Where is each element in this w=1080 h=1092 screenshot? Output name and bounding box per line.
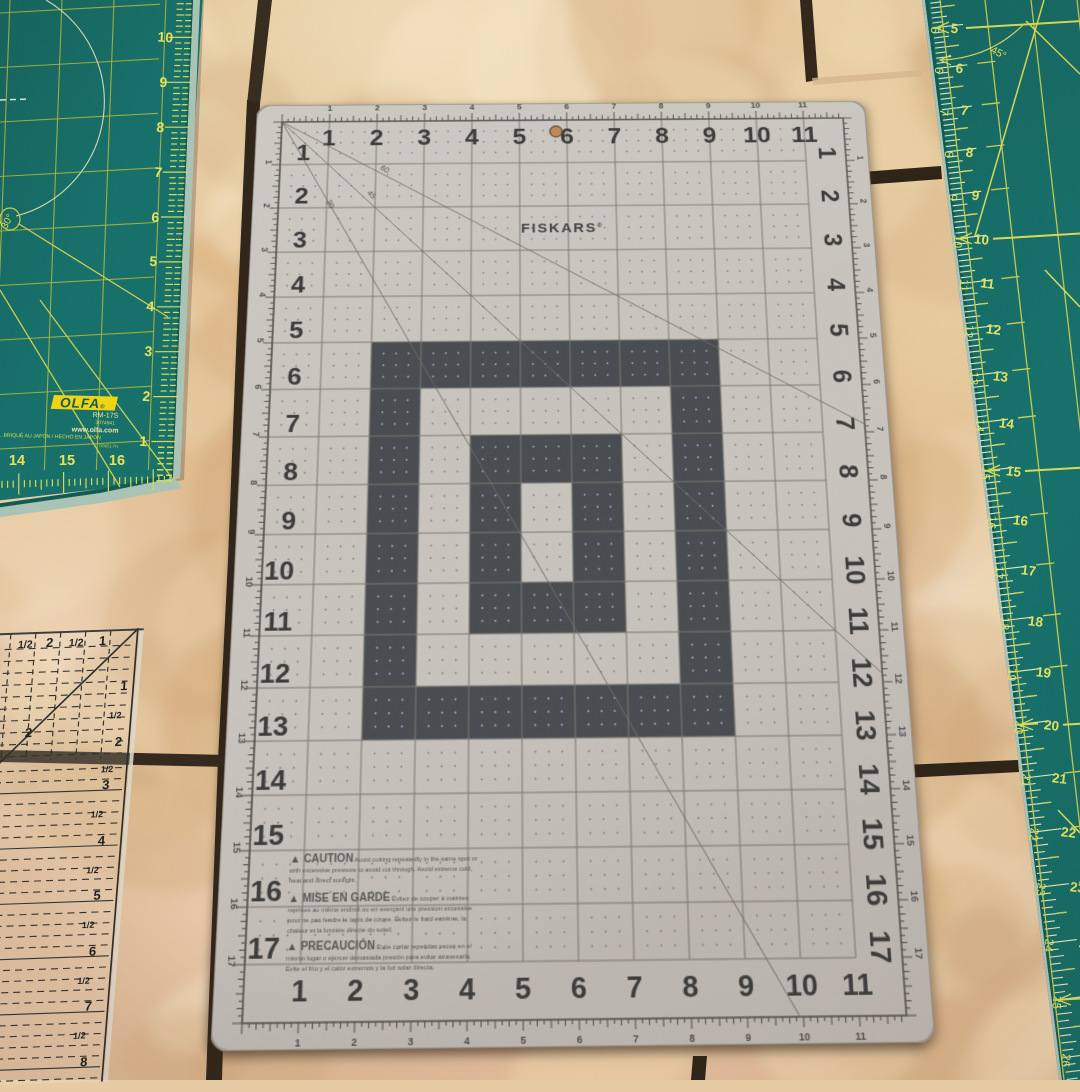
svg-text:2: 2 bbox=[262, 203, 272, 208]
svg-text:14: 14 bbox=[233, 787, 244, 799]
svg-text:13: 13 bbox=[849, 710, 882, 741]
svg-text:4: 4 bbox=[464, 1035, 470, 1047]
svg-text:9: 9 bbox=[246, 529, 257, 535]
svg-text:9: 9 bbox=[882, 523, 893, 529]
svg-text:6: 6 bbox=[577, 1034, 583, 1046]
svg-text:1: 1 bbox=[295, 1037, 302, 1049]
svg-text:16: 16 bbox=[228, 898, 240, 910]
svg-text:6: 6 bbox=[827, 369, 857, 383]
svg-text:12: 12 bbox=[893, 673, 904, 684]
svg-text:4: 4 bbox=[865, 287, 875, 292]
svg-text:7: 7 bbox=[154, 164, 163, 181]
svg-text:5: 5 bbox=[289, 316, 304, 343]
svg-text:1/2: 1/2 bbox=[100, 764, 113, 774]
svg-text:5: 5 bbox=[255, 338, 265, 343]
svg-text:7: 7 bbox=[626, 970, 643, 1004]
svg-text:13: 13 bbox=[896, 726, 908, 737]
svg-text:4: 4 bbox=[822, 278, 851, 291]
svg-text:2: 2 bbox=[142, 388, 151, 405]
svg-text:4: 4 bbox=[291, 271, 306, 297]
svg-text:11: 11 bbox=[956, 278, 971, 292]
svg-text:5: 5 bbox=[93, 888, 101, 903]
svg-text:14: 14 bbox=[998, 415, 1015, 432]
svg-text:14: 14 bbox=[853, 763, 886, 795]
svg-text:RM-17S: RM-17S bbox=[93, 412, 119, 420]
svg-text:8: 8 bbox=[248, 480, 259, 486]
svg-text:2: 2 bbox=[351, 1036, 358, 1048]
svg-text:10: 10 bbox=[750, 101, 760, 110]
svg-text:15: 15 bbox=[1005, 463, 1022, 480]
svg-text:14: 14 bbox=[900, 780, 912, 792]
svg-text:16: 16 bbox=[908, 891, 920, 903]
svg-text:6: 6 bbox=[151, 209, 160, 226]
svg-text:2: 2 bbox=[294, 183, 309, 208]
svg-text:4: 4 bbox=[146, 298, 155, 315]
svg-text:2: 2 bbox=[816, 190, 845, 203]
svg-text:4: 4 bbox=[470, 103, 475, 112]
svg-text:1/2: 1/2 bbox=[18, 639, 34, 651]
svg-text:7: 7 bbox=[285, 410, 301, 438]
svg-text:13: 13 bbox=[992, 368, 1009, 385]
svg-text:1: 1 bbox=[855, 156, 865, 161]
svg-text:17: 17 bbox=[863, 930, 897, 964]
svg-text:11: 11 bbox=[980, 275, 996, 292]
svg-text:2: 2 bbox=[114, 734, 122, 749]
svg-text:3: 3 bbox=[422, 103, 427, 112]
svg-text:8: 8 bbox=[878, 474, 889, 480]
svg-text:6: 6 bbox=[253, 384, 263, 389]
svg-text:3: 3 bbox=[861, 243, 871, 248]
svg-text:2: 2 bbox=[858, 199, 868, 204]
svg-text:7: 7 bbox=[84, 999, 92, 1014]
svg-text:7: 7 bbox=[633, 1033, 640, 1045]
svg-text:3074941: 3074941 bbox=[95, 420, 115, 427]
svg-text:11: 11 bbox=[263, 606, 293, 636]
svg-text:1/2: 1/2 bbox=[82, 920, 95, 930]
svg-text:13: 13 bbox=[257, 710, 289, 741]
svg-text:17: 17 bbox=[225, 955, 237, 967]
svg-text:6: 6 bbox=[871, 379, 881, 384]
svg-text:6: 6 bbox=[287, 363, 303, 390]
svg-text:17: 17 bbox=[247, 931, 281, 965]
svg-text:9: 9 bbox=[281, 506, 297, 535]
svg-text:13: 13 bbox=[966, 371, 981, 386]
svg-text:20: 20 bbox=[1043, 717, 1060, 734]
svg-text:8: 8 bbox=[689, 1032, 696, 1044]
svg-text:8: 8 bbox=[655, 123, 670, 148]
svg-text:1/2: 1/2 bbox=[73, 1031, 86, 1041]
svg-text:8: 8 bbox=[659, 102, 665, 110]
svg-text:7: 7 bbox=[251, 432, 261, 437]
svg-text:12: 12 bbox=[239, 680, 250, 691]
svg-text:5: 5 bbox=[149, 253, 158, 270]
svg-text:15: 15 bbox=[252, 819, 285, 852]
svg-text:2: 2 bbox=[375, 104, 381, 113]
svg-text:1: 1 bbox=[813, 147, 842, 160]
svg-text:6: 6 bbox=[571, 971, 588, 1005]
svg-text:8: 8 bbox=[156, 119, 165, 136]
svg-text:6: 6 bbox=[89, 944, 97, 959]
svg-text:4: 4 bbox=[257, 292, 267, 297]
svg-text:9: 9 bbox=[159, 74, 168, 91]
svg-text:14: 14 bbox=[9, 453, 25, 469]
svg-text:17: 17 bbox=[991, 565, 1006, 580]
svg-text:chaleur et la lumière directe: chaleur et la lumière directe du soleil. bbox=[287, 927, 393, 936]
svg-text:12: 12 bbox=[846, 657, 879, 687]
svg-text:3: 3 bbox=[408, 1036, 415, 1048]
svg-text:RB651-7N: RB651-7N bbox=[99, 443, 118, 448]
svg-text:9: 9 bbox=[702, 123, 717, 148]
svg-text:6: 6 bbox=[564, 102, 569, 111]
svg-text:10: 10 bbox=[157, 28, 174, 45]
svg-text:11: 11 bbox=[241, 628, 252, 639]
svg-text:1: 1 bbox=[327, 104, 333, 113]
svg-text:10: 10 bbox=[243, 577, 254, 588]
svg-text:12: 12 bbox=[985, 321, 1002, 338]
svg-text:5: 5 bbox=[520, 1034, 526, 1046]
svg-text:10: 10 bbox=[743, 122, 772, 147]
svg-text:17: 17 bbox=[912, 948, 924, 960]
svg-text:5: 5 bbox=[517, 103, 522, 112]
svg-text:8: 8 bbox=[682, 969, 699, 1003]
svg-text:heat and direct sunlight.: heat and direct sunlight. bbox=[289, 877, 357, 885]
svg-text:22: 22 bbox=[1026, 827, 1041, 842]
svg-text:1/2: 1/2 bbox=[109, 710, 122, 720]
svg-text:12: 12 bbox=[259, 658, 291, 689]
svg-text:5: 5 bbox=[868, 333, 878, 338]
svg-text:2: 2 bbox=[369, 125, 383, 150]
svg-text:3: 3 bbox=[259, 247, 269, 252]
svg-text:6: 6 bbox=[560, 124, 574, 149]
svg-text:15: 15 bbox=[856, 818, 890, 850]
svg-text:19: 19 bbox=[1035, 664, 1052, 681]
svg-text:12: 12 bbox=[961, 324, 976, 339]
svg-text:16: 16 bbox=[1012, 512, 1029, 529]
svg-text:16: 16 bbox=[250, 874, 283, 907]
svg-text:1: 1 bbox=[139, 433, 148, 450]
svg-text:15: 15 bbox=[231, 842, 243, 854]
svg-text:16: 16 bbox=[860, 873, 894, 906]
svg-text:3: 3 bbox=[403, 972, 420, 1006]
svg-text:4: 4 bbox=[465, 124, 479, 149]
svg-text:11: 11 bbox=[855, 1030, 867, 1042]
svg-text:18: 18 bbox=[997, 616, 1012, 631]
svg-text:16: 16 bbox=[984, 515, 999, 530]
svg-text:OLFA®: OLFA® bbox=[60, 395, 106, 411]
svg-text:15: 15 bbox=[904, 835, 916, 847]
svg-text:5: 5 bbox=[515, 971, 531, 1005]
svg-text:5: 5 bbox=[824, 323, 854, 337]
svg-text:1/2: 1/2 bbox=[77, 976, 90, 986]
svg-text:21: 21 bbox=[1018, 773, 1033, 788]
svg-text:11: 11 bbox=[791, 122, 819, 147]
svg-text:3: 3 bbox=[102, 777, 110, 792]
svg-text:23: 23 bbox=[1069, 879, 1080, 896]
svg-text:15: 15 bbox=[59, 453, 75, 469]
svg-text:1: 1 bbox=[291, 974, 308, 1008]
svg-text:1/2: 1/2 bbox=[90, 809, 103, 819]
svg-text:10: 10 bbox=[264, 556, 295, 586]
svg-text:10: 10 bbox=[799, 1031, 812, 1043]
svg-text:3: 3 bbox=[417, 125, 431, 150]
svg-text:10: 10 bbox=[839, 555, 871, 584]
svg-text:2: 2 bbox=[24, 725, 32, 740]
svg-text:5: 5 bbox=[513, 124, 527, 149]
svg-text:11: 11 bbox=[841, 967, 874, 1001]
svg-text:1: 1 bbox=[296, 140, 311, 165]
svg-text:9: 9 bbox=[837, 513, 868, 528]
svg-text:7: 7 bbox=[607, 123, 621, 148]
svg-text:18: 18 bbox=[1027, 613, 1044, 630]
svg-text:8: 8 bbox=[80, 1054, 88, 1069]
svg-text:1: 1 bbox=[264, 160, 274, 165]
svg-text:3: 3 bbox=[292, 227, 307, 253]
svg-text:3: 3 bbox=[144, 343, 153, 360]
svg-text:7: 7 bbox=[830, 416, 860, 430]
svg-text:14: 14 bbox=[972, 418, 987, 433]
svg-text:1: 1 bbox=[99, 633, 107, 648]
svg-text:8: 8 bbox=[834, 464, 864, 478]
svg-text:FISKARS®: FISKARS® bbox=[521, 220, 604, 235]
svg-text:8: 8 bbox=[283, 457, 299, 485]
svg-text:13: 13 bbox=[236, 733, 247, 744]
svg-text:2: 2 bbox=[46, 635, 54, 650]
svg-text:11: 11 bbox=[843, 607, 875, 636]
svg-text:www.olfa.com: www.olfa.com bbox=[71, 426, 119, 434]
svg-text:17: 17 bbox=[1020, 562, 1037, 579]
svg-text:1/2: 1/2 bbox=[86, 865, 99, 875]
svg-text:7: 7 bbox=[611, 102, 616, 110]
svg-text:11: 11 bbox=[798, 101, 808, 109]
svg-text:10: 10 bbox=[885, 571, 896, 582]
svg-text:1/2: 1/2 bbox=[69, 637, 85, 649]
svg-text:4: 4 bbox=[459, 972, 475, 1006]
svg-text:3: 3 bbox=[819, 233, 848, 246]
svg-text:14: 14 bbox=[254, 764, 287, 796]
svg-text:10: 10 bbox=[785, 968, 819, 1002]
svg-text:16: 16 bbox=[109, 453, 125, 469]
svg-text:1: 1 bbox=[120, 678, 128, 693]
svg-text:11: 11 bbox=[889, 622, 900, 632]
svg-text:7: 7 bbox=[875, 426, 886, 431]
svg-text:2: 2 bbox=[347, 973, 364, 1007]
svg-text:9: 9 bbox=[737, 969, 755, 1003]
